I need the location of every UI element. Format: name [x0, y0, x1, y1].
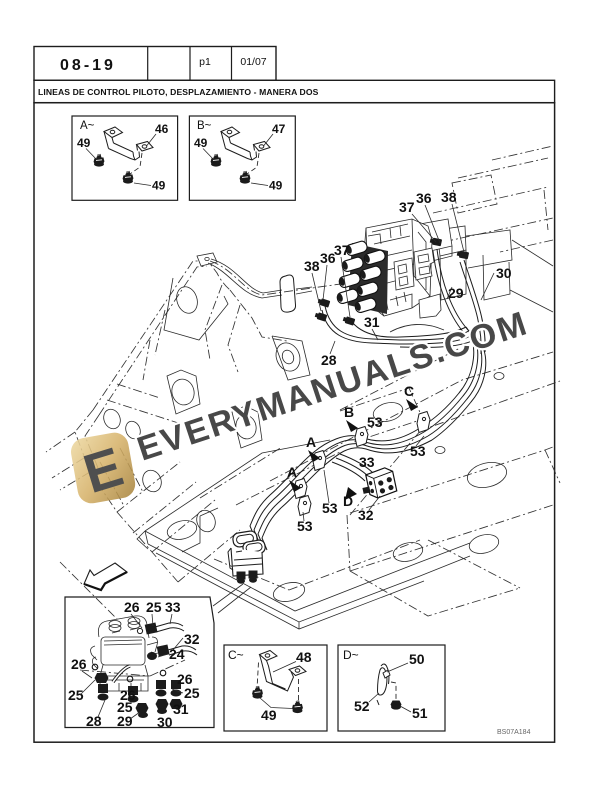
svg-text:33: 33	[165, 599, 181, 615]
svg-text:01/07: 01/07	[240, 56, 266, 68]
svg-text:38: 38	[441, 189, 457, 205]
svg-text:28: 28	[321, 352, 337, 368]
svg-text:25: 25	[184, 685, 200, 701]
svg-text:C~: C~	[228, 648, 244, 662]
svg-text:LINEAS DE CONTROL PILOTO, DESP: LINEAS DE CONTROL PILOTO, DESPLAZAMIENTO…	[38, 87, 319, 97]
svg-text:51: 51	[412, 705, 428, 721]
svg-text:37: 37	[399, 199, 415, 215]
svg-text:50: 50	[409, 651, 425, 667]
svg-text:47: 47	[272, 122, 286, 136]
svg-text:53: 53	[297, 518, 313, 534]
svg-text:48: 48	[296, 649, 312, 665]
svg-text:52: 52	[354, 698, 370, 714]
svg-text:36: 36	[320, 250, 336, 266]
svg-text:A: A	[287, 464, 297, 480]
svg-text:36: 36	[416, 190, 432, 206]
svg-text:A: A	[306, 434, 316, 450]
svg-text:49: 49	[269, 179, 283, 193]
svg-text:53: 53	[322, 500, 338, 516]
svg-text:31: 31	[364, 314, 380, 330]
svg-text:32: 32	[184, 631, 200, 647]
svg-text:B~: B~	[197, 120, 212, 132]
svg-text:49: 49	[152, 179, 166, 193]
svg-text:33: 33	[359, 454, 375, 470]
svg-text:49: 49	[194, 136, 208, 150]
svg-text:p1: p1	[199, 56, 211, 68]
svg-text:29: 29	[117, 713, 133, 729]
svg-text:32: 32	[358, 507, 374, 523]
svg-text:26: 26	[124, 599, 140, 615]
svg-text:26: 26	[71, 656, 87, 672]
svg-text:46: 46	[155, 122, 169, 136]
svg-text:29: 29	[448, 285, 464, 301]
svg-text:08-19: 08-19	[60, 57, 116, 74]
svg-text:25: 25	[146, 599, 162, 615]
svg-text:24: 24	[169, 646, 185, 662]
svg-text:30: 30	[496, 265, 512, 281]
svg-text:D~: D~	[343, 648, 359, 662]
svg-text:31: 31	[173, 701, 189, 717]
svg-text:A~: A~	[80, 120, 95, 132]
svg-text:30: 30	[157, 714, 173, 730]
svg-text:49: 49	[261, 707, 277, 723]
svg-text:28: 28	[86, 713, 102, 729]
svg-text:37: 37	[334, 242, 350, 258]
svg-text:25: 25	[68, 687, 84, 703]
svg-text:53: 53	[410, 443, 426, 459]
svg-text:C: C	[404, 383, 414, 399]
svg-text:38: 38	[304, 258, 320, 274]
svg-text:53: 53	[367, 414, 383, 430]
svg-text:B: B	[344, 404, 354, 420]
svg-text:49: 49	[77, 136, 91, 150]
svg-text:BS07A184: BS07A184	[497, 729, 531, 736]
